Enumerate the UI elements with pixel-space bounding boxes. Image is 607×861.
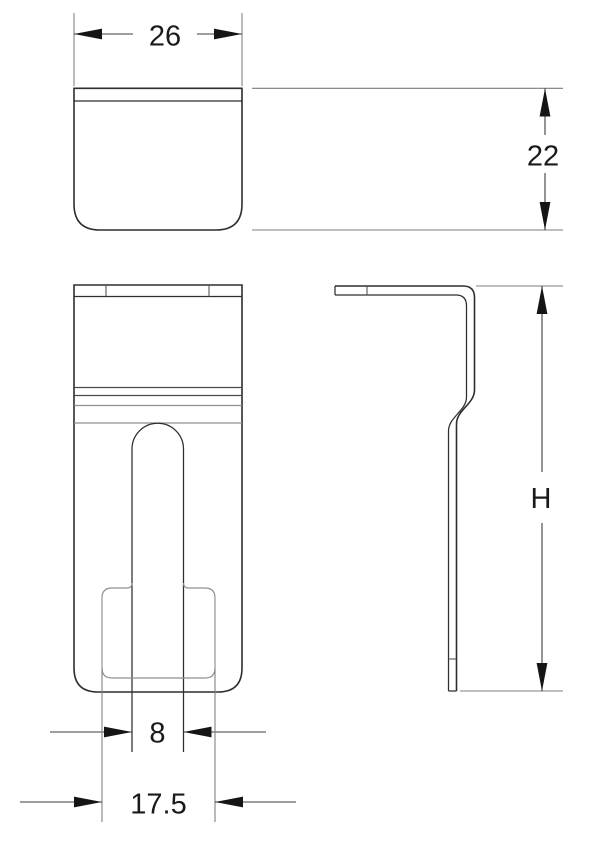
technical-drawing: 26 22 <box>0 0 607 861</box>
top-view <box>74 88 242 230</box>
front-view <box>74 285 242 752</box>
dim-22-label: 22 <box>527 141 559 173</box>
front-view-outline <box>74 285 242 692</box>
pocket <box>102 583 215 678</box>
dim-17-5-label: 17.5 <box>130 789 186 821</box>
dim-slot-width: 8 <box>50 718 266 750</box>
arrowhead-left <box>74 29 102 40</box>
arrowhead-down <box>540 202 551 230</box>
side-view <box>335 286 475 691</box>
arrowhead-left <box>184 727 212 738</box>
drawing-canvas: 26 22 <box>0 0 607 861</box>
side-profile-outer <box>335 286 475 691</box>
dim-8-label: 8 <box>149 718 165 750</box>
dim-26-label: 26 <box>149 21 181 53</box>
arrowhead-right <box>74 797 102 808</box>
arrowhead-up <box>540 89 551 117</box>
arrowhead-right <box>214 29 242 40</box>
dim-top-depth: 22 <box>252 88 563 230</box>
dim-overall-height: H <box>460 286 563 691</box>
arrowhead-left <box>215 797 243 808</box>
dim-h-label: H <box>531 483 552 515</box>
slot <box>132 423 184 752</box>
top-view-outline <box>74 88 242 230</box>
side-profile-inner <box>335 295 467 691</box>
arrowhead-down <box>537 663 548 691</box>
arrowhead-right <box>104 727 132 738</box>
arrowhead-up <box>537 286 548 314</box>
dim-top-width: 26 <box>74 13 242 86</box>
